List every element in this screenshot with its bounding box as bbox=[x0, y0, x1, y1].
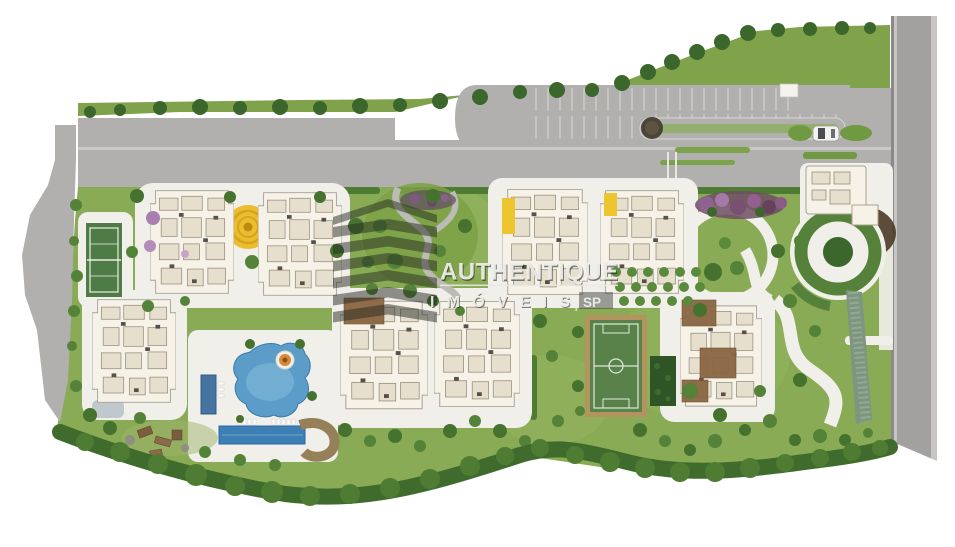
tennis-court bbox=[85, 222, 123, 298]
service-structure bbox=[780, 84, 798, 97]
building-tower bbox=[434, 301, 520, 406]
play-patch bbox=[604, 193, 617, 216]
brand-name: AUTHENTIQUE bbox=[440, 259, 618, 286]
soccer-field bbox=[585, 315, 647, 417]
top-road bbox=[78, 118, 395, 187]
play-patch bbox=[502, 198, 515, 234]
site-plan: AUTHENTIQUE AUTHENTIQUE IMÓVEIS IMÓVEIS … bbox=[0, 0, 955, 547]
kids-pool bbox=[201, 375, 216, 414]
planting-square bbox=[650, 356, 676, 406]
car bbox=[813, 126, 839, 141]
watermark-underline bbox=[440, 285, 618, 287]
watermark-separator: | bbox=[574, 293, 578, 312]
building-tower bbox=[92, 300, 176, 403]
left-road bbox=[22, 125, 76, 422]
road-curb bbox=[78, 147, 893, 150]
lap-pool bbox=[212, 418, 312, 452]
pergola bbox=[700, 348, 736, 378]
building-tower bbox=[150, 191, 234, 294]
building-tower bbox=[258, 193, 342, 296]
site-plan-canvas: AUTHENTIQUE AUTHENTIQUE IMÓVEIS IMÓVEIS … bbox=[0, 0, 955, 547]
brand-region: SP bbox=[583, 295, 601, 310]
